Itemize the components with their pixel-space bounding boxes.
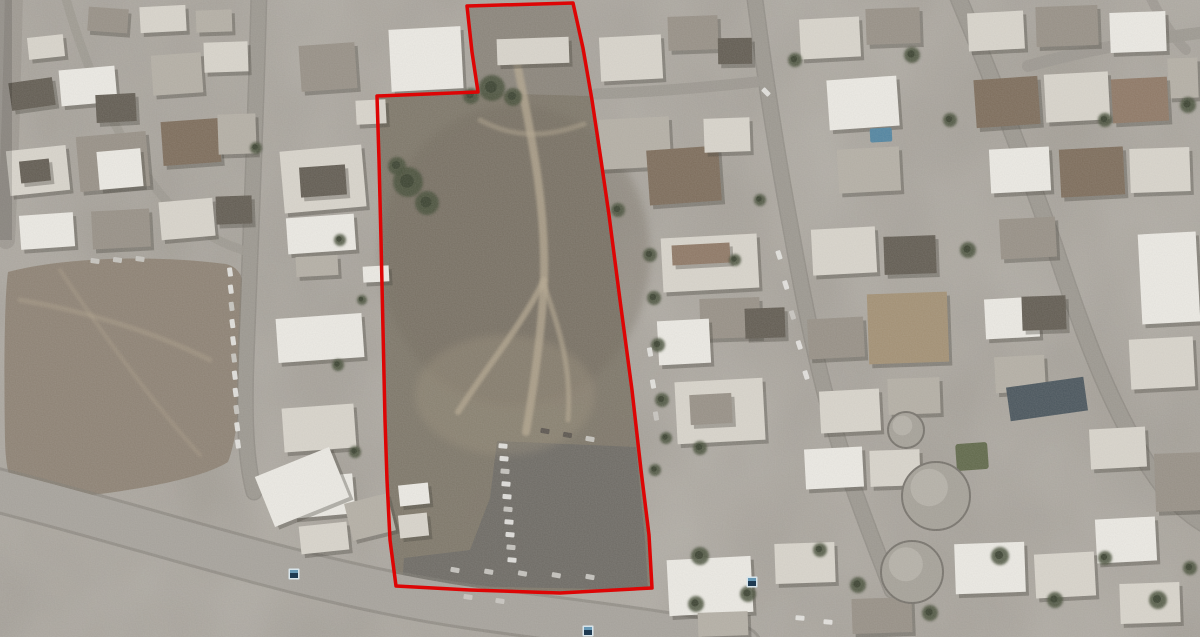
placemark-3[interactable]: [747, 577, 758, 588]
satellite-map-view[interactable]: [0, 0, 1200, 637]
map-canvas[interactable]: [0, 0, 1200, 637]
placemark-1[interactable]: [289, 569, 300, 580]
grain-layer: [0, 0, 1200, 637]
placemark-2[interactable]: [583, 626, 594, 637]
